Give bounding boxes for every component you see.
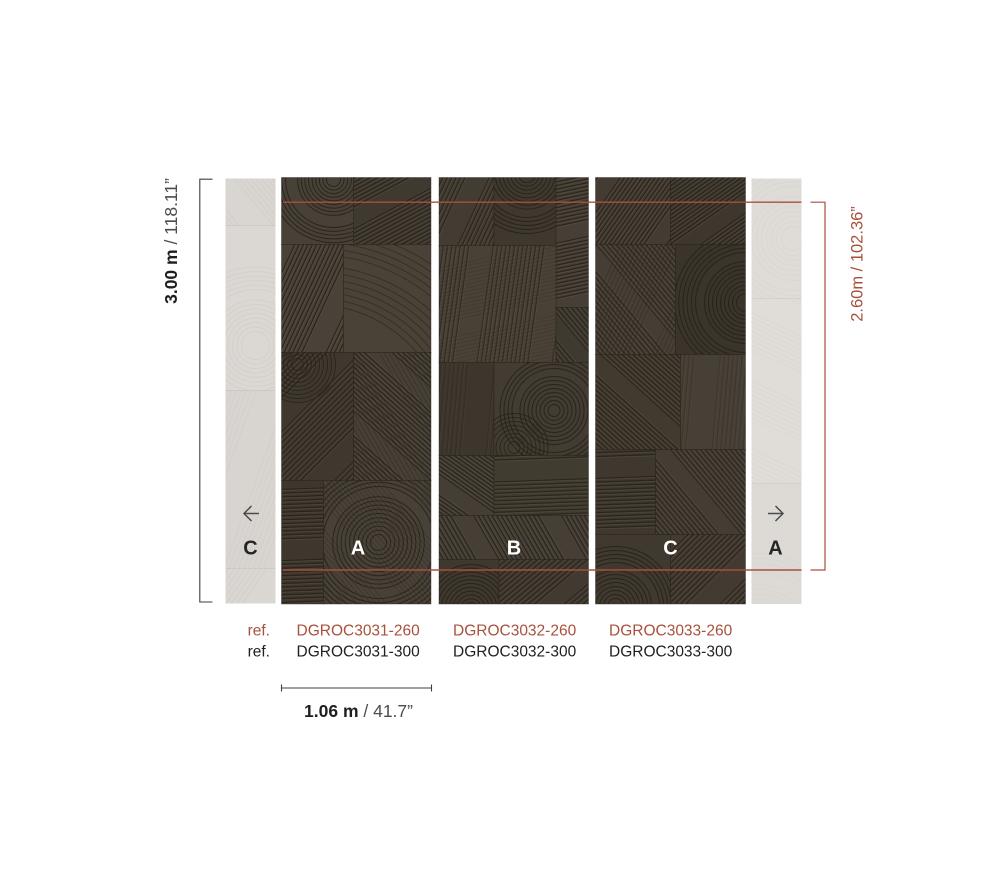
svg-text:ref.: ref. [248,623,270,640]
svg-text:DGROC3031-300: DGROC3031-300 [297,644,421,661]
svg-text:DGROC3033-260: DGROC3033-260 [609,623,733,640]
svg-text:ref.: ref. [248,644,270,661]
svg-text:3.00 m / 118.11”: 3.00 m / 118.11” [161,178,181,304]
svg-text:C: C [663,538,677,560]
svg-text:2.60m / 102.36”: 2.60m / 102.36” [849,206,867,322]
svg-text:A: A [768,538,782,560]
svg-text:A: A [351,538,365,560]
svg-text:C: C [243,538,257,560]
svg-text:DGROC3032-300: DGROC3032-300 [453,644,577,661]
svg-text:1.06 m / 41.7”: 1.06 m / 41.7” [304,701,413,721]
svg-text:DGROC3032-260: DGROC3032-260 [453,623,577,640]
svg-text:B: B [507,538,521,560]
svg-text:DGROC3033-300: DGROC3033-300 [609,644,733,661]
svg-text:DGROC3031-260: DGROC3031-260 [297,623,421,640]
